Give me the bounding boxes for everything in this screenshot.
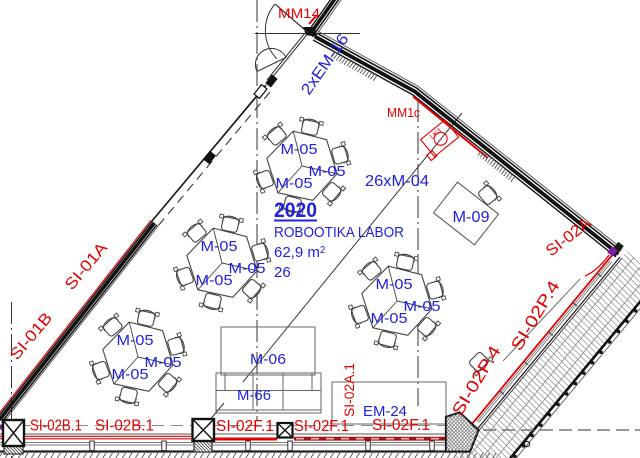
svg-text:62,9 m2: 62,9 m2 (274, 244, 326, 261)
svg-text:M-05: M-05 (404, 298, 441, 315)
svg-text:M-09: M-09 (453, 209, 490, 226)
svg-text:M-05: M-05 (309, 163, 346, 180)
svg-text:M-05: M-05 (117, 332, 154, 349)
svg-text:M-05: M-05 (371, 310, 408, 327)
svg-text:SI-02B.1: SI-02B.1 (30, 418, 82, 435)
svg-text:M-05: M-05 (276, 175, 313, 192)
svg-text:MM1c: MM1c (387, 106, 420, 120)
svg-text:SI-02A.1: SI-02A.1 (341, 363, 357, 417)
svg-text:SI-02F.1: SI-02F.1 (216, 418, 274, 435)
svg-text:SI-02F.1: SI-02F.1 (294, 418, 349, 435)
svg-text:26xM-04: 26xM-04 (365, 173, 429, 190)
svg-text:M-05: M-05 (112, 366, 149, 383)
svg-text:SI-02F.1: SI-02F.1 (372, 417, 430, 434)
svg-text:M-05: M-05 (229, 260, 266, 277)
svg-text:M-05: M-05 (376, 276, 413, 293)
svg-text:M-05: M-05 (145, 354, 182, 371)
svg-text:M-05: M-05 (196, 272, 233, 289)
svg-text:26: 26 (274, 264, 291, 281)
svg-text:SI-02B.1: SI-02B.1 (95, 418, 154, 435)
svg-text:M-05: M-05 (201, 238, 238, 255)
svg-text:M-66: M-66 (237, 387, 271, 404)
svg-text:M-05: M-05 (281, 141, 318, 158)
svg-text:M-06: M-06 (250, 351, 286, 368)
svg-text:ROBOOTIKA LABOR: ROBOOTIKA LABOR (274, 224, 404, 241)
svg-text:2020: 2020 (274, 199, 317, 222)
